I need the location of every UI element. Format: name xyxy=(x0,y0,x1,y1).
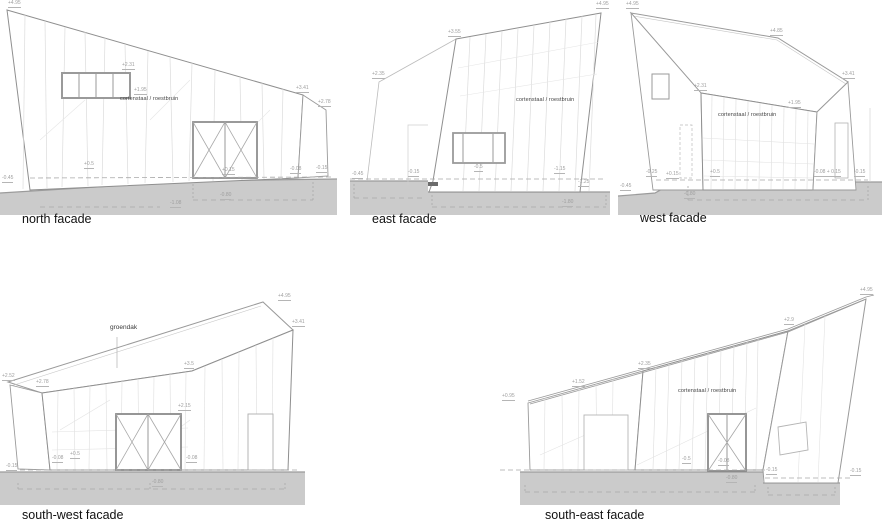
facade-title-southeast: south-east facade xyxy=(545,508,644,522)
slanted-window xyxy=(778,422,808,455)
elevation-mark: +2.52 xyxy=(2,374,15,381)
plinth-patch xyxy=(428,182,438,186)
elevation-mark: +3.41 xyxy=(292,320,305,327)
facade-west-drawing xyxy=(618,0,882,240)
small-window xyxy=(652,74,669,99)
facade-west: cortenstaal / roestbruin +4.95+4.85+3.41… xyxy=(618,0,882,240)
elevation-mark: +3.41 xyxy=(296,86,309,93)
elevation-mark: +0.5 xyxy=(710,170,720,177)
elevation-mark: +4.95 xyxy=(596,2,609,9)
facade-southwest-drawing xyxy=(0,280,330,526)
elevation-mark: -1.25 xyxy=(578,180,589,187)
facade-southeast: cortenstaal / roestbruin +0.95+1.52+2.35… xyxy=(500,280,882,526)
elevation-mark: +0.15 xyxy=(666,172,679,179)
elevation-mark: -0.25 xyxy=(646,170,657,177)
elevation-mark: -1.15 xyxy=(554,167,565,174)
elevation-mark: -0.15 xyxy=(316,166,327,173)
elevation-mark: +3.5 xyxy=(184,362,194,369)
elevation-mark: +3.55 xyxy=(448,30,461,37)
elevation-mark: +1.52 xyxy=(572,380,585,387)
ground-lower xyxy=(428,192,610,215)
facade-north: cortenstaal / roestbruin +4.95+3.41+2.78… xyxy=(0,0,345,240)
elevation-mark: -0.08 xyxy=(290,167,301,174)
facade-southeast-drawing xyxy=(500,280,882,526)
elevation-mark: -0.45 xyxy=(2,176,13,183)
ground xyxy=(350,181,428,215)
elevation-mark: -0.15 xyxy=(850,469,861,476)
elevation-mark: +1.95 xyxy=(134,88,147,95)
elevation-mark: -0.45 xyxy=(620,184,631,191)
material-label: cortenstaal / roestbruin xyxy=(120,96,178,102)
elevation-mark: +0.5 xyxy=(84,162,94,169)
elevation-mark: +0.5 xyxy=(70,452,80,459)
elevation-mark: -0.08 + 0.15 xyxy=(814,170,841,177)
side-door xyxy=(248,414,273,470)
double-door xyxy=(116,414,181,470)
elevation-mark: +4.95 xyxy=(278,294,291,301)
elevation-mark: -0.08 xyxy=(52,456,63,463)
elevation-mark: +2.9 xyxy=(784,318,794,325)
elevation-mark: -0.08 xyxy=(718,459,729,466)
facade-title-west: west facade xyxy=(640,211,707,225)
elevation-mark: +2.31 xyxy=(122,63,135,70)
elevation-mark: -0.5 xyxy=(474,165,483,172)
right-wall xyxy=(763,299,866,483)
elevation-mark: +3.41 xyxy=(842,72,855,79)
elevation-mark: +0.95 xyxy=(502,394,515,401)
elevation-mark: -0.80 xyxy=(684,192,695,199)
elevation-mark: -0.80 xyxy=(220,193,231,200)
elevation-mark: -0.45 xyxy=(352,172,363,179)
elevation-mark: +1.95 xyxy=(788,101,801,108)
facade-title-east: east facade xyxy=(372,212,437,226)
elevation-mark: -0.15 xyxy=(6,464,17,471)
ribbon-window xyxy=(62,73,130,98)
elevation-mark: -1.80 xyxy=(562,200,573,207)
facade-title-southwest: south-west facade xyxy=(22,508,123,522)
elevation-mark: +2.35 xyxy=(372,72,385,79)
material-label: cortenstaal / roestbruin xyxy=(516,97,574,103)
elevation-mark: -0.08 xyxy=(186,456,197,463)
elevation-mark: +4.85 xyxy=(770,29,783,36)
elevation-mark: +4.95 xyxy=(860,288,873,295)
facade-east: cortenstaal / roestbruin +4.95+3.55+2.35… xyxy=(350,0,630,240)
window xyxy=(453,133,505,163)
elevation-mark: +4.95 xyxy=(8,1,21,8)
elevation-mark: +2.15 xyxy=(178,404,191,411)
material-label: cortenstaal / roestbruin xyxy=(678,388,736,394)
elevation-drawing-sheet: cortenstaal / roestbruin +4.95+3.41+2.78… xyxy=(0,0,882,526)
elevation-mark: -0.15 xyxy=(854,170,865,177)
elevation-mark: +0.15 xyxy=(222,168,235,175)
facade-title-north: north facade xyxy=(22,212,92,226)
elevation-mark: +2.78 xyxy=(318,100,331,107)
elevation-mark: +2.78 xyxy=(36,380,49,387)
elevation-mark: -0.15 xyxy=(766,468,777,475)
left-window xyxy=(584,415,628,470)
elevation-mark: -1.08 xyxy=(170,201,181,208)
green-roof-label: groendak xyxy=(110,324,137,331)
elevation-mark: -0.15 xyxy=(408,170,419,177)
elevation-mark: +2.35 xyxy=(638,362,651,369)
facade-east-drawing xyxy=(350,0,630,240)
elevation-mark: -0.80 xyxy=(152,480,163,487)
facade-southwest: groendak +4.95+3.41+3.5+2.78+2.52+2.15+0… xyxy=(0,280,330,526)
elevation-mark: -0.80 xyxy=(726,476,737,483)
elevation-mark: -0.5 xyxy=(682,457,691,464)
ground-lower xyxy=(763,483,840,505)
ground xyxy=(0,472,305,505)
material-label: cortenstaal / roestbruin xyxy=(718,112,776,118)
elevation-mark: +4.95 xyxy=(626,2,639,9)
elevation-mark: +2.31 xyxy=(694,84,707,91)
